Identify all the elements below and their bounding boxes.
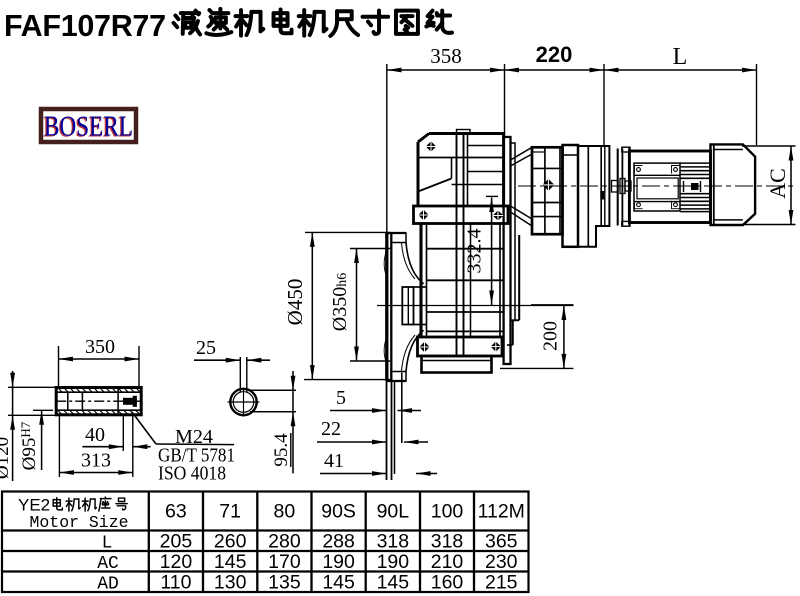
svg-text:AD: AD <box>97 575 119 595</box>
svg-text:ISO 4018: ISO 4018 <box>158 463 226 485</box>
svg-text:215: 215 <box>485 572 518 594</box>
svg-text:90L: 90L <box>377 501 410 523</box>
svg-text:5: 5 <box>336 387 346 409</box>
svg-text:145: 145 <box>377 572 410 594</box>
svg-text:100: 100 <box>431 501 464 523</box>
svg-text:288: 288 <box>322 531 355 553</box>
svg-text:358: 358 <box>430 44 462 68</box>
svg-text:230: 230 <box>485 551 518 573</box>
svg-text:313: 313 <box>81 450 111 472</box>
svg-text:90S: 90S <box>321 501 356 523</box>
svg-text:AC: AC <box>97 554 119 574</box>
svg-text:Ø120: Ø120 <box>0 437 13 479</box>
svg-text:130: 130 <box>214 572 247 594</box>
svg-text:210: 210 <box>431 551 464 573</box>
svg-text:L: L <box>673 44 688 70</box>
svg-text:FAF107R77: FAF107R77 <box>4 9 166 43</box>
svg-text:L: L <box>102 534 113 554</box>
svg-text:365: 365 <box>485 531 518 553</box>
svg-text:BOSERL: BOSERL <box>44 111 133 143</box>
svg-text:22: 22 <box>321 418 341 440</box>
svg-text:350: 350 <box>85 336 115 358</box>
svg-text:160: 160 <box>431 572 464 594</box>
svg-text:145: 145 <box>214 551 247 573</box>
svg-text:110: 110 <box>160 572 191 594</box>
svg-text:Ø450: Ø450 <box>283 279 307 326</box>
svg-text:71: 71 <box>219 501 241 523</box>
svg-text:260: 260 <box>214 531 247 553</box>
svg-text:200: 200 <box>540 321 562 351</box>
svg-text:205: 205 <box>160 531 193 553</box>
svg-text:112M: 112M <box>478 501 525 523</box>
svg-text:40: 40 <box>85 424 105 446</box>
svg-text:Motor Size: Motor Size <box>29 513 128 532</box>
svg-text:280: 280 <box>268 531 301 553</box>
svg-text:318: 318 <box>431 531 464 553</box>
svg-text:41: 41 <box>324 450 344 472</box>
svg-text:332.4: 332.4 <box>464 229 486 274</box>
svg-text:YE2: YE2 <box>18 496 50 515</box>
svg-text:190: 190 <box>377 551 410 573</box>
svg-text:63: 63 <box>165 501 187 523</box>
svg-text:318: 318 <box>377 531 410 553</box>
svg-text:135: 135 <box>268 572 301 594</box>
svg-text:95.4: 95.4 <box>271 433 292 467</box>
svg-text:AC: AC <box>765 168 790 199</box>
svg-text:120: 120 <box>160 551 193 573</box>
svg-text:220: 220 <box>536 42 573 67</box>
svg-text:25: 25 <box>196 337 216 359</box>
svg-text:190: 190 <box>322 551 355 573</box>
svg-text:145: 145 <box>322 572 355 594</box>
svg-text:170: 170 <box>268 551 301 573</box>
svg-text:80: 80 <box>274 501 296 523</box>
